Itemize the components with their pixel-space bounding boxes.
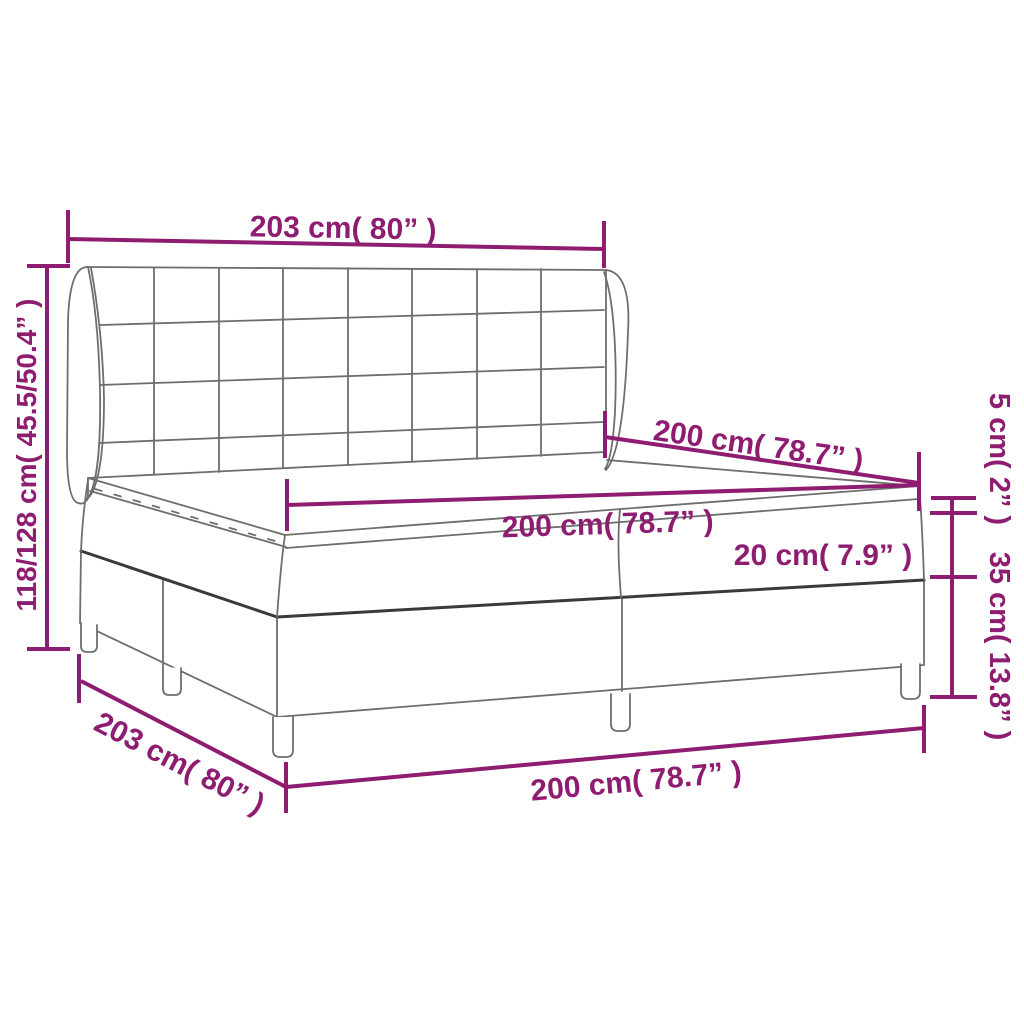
mattress-top-far-edge <box>607 460 919 486</box>
leg-front-middle <box>611 694 630 731</box>
headboard-left-wing-outer <box>67 267 88 504</box>
label-mattress-width: 200 cm( 78.7” ) <box>501 505 714 545</box>
mattress-left-end-edge <box>81 480 88 551</box>
leg-front-left <box>81 623 97 652</box>
headboard-bottom-edge <box>88 452 606 478</box>
bed-dimension-diagram: 203 cm( 80” ) 118/128 cm( 45.5/50.4” ) 2… <box>0 0 1024 1024</box>
dim-right-heights <box>930 498 977 697</box>
headboard-top-edge <box>88 267 606 270</box>
mattress-front-corner-edge <box>277 535 285 617</box>
headboard-left-wing-inner <box>87 267 100 500</box>
base-left-edge <box>80 551 81 623</box>
tuft-grid-h2 <box>100 367 604 385</box>
label-base-height: 35 cm( 13.8” ) <box>983 552 1015 741</box>
base-box-spring <box>80 551 924 717</box>
mattress-stitch-dashes <box>95 489 282 543</box>
leg-front-corner <box>273 717 293 757</box>
label-mattress-height: 20 cm( 7.9” ) <box>734 539 912 572</box>
tuft-grid-h3 <box>99 422 604 443</box>
label-topper-height: 5 cm( 2” ) <box>983 393 1015 525</box>
label-bed-length-upper: 200 cm( 78.7” ) <box>651 414 865 477</box>
bed-dimension-diagram-page: 203 cm( 80” ) 118/128 cm( 45.5/50.4” ) 2… <box>0 0 1024 1024</box>
headboard <box>67 267 628 504</box>
label-total-height: 118/128 cm( 45.5/50.4” ) <box>11 299 42 612</box>
mattress-top-left-edge <box>88 478 285 535</box>
leg-front-right <box>901 664 920 699</box>
tuft-grid-h1 <box>100 310 604 325</box>
leg-left-middle <box>163 667 181 695</box>
bed-drawing <box>67 267 924 757</box>
legs <box>81 623 920 757</box>
mattress-topper-seam-left <box>90 491 286 547</box>
base-front-bottom-edge <box>277 665 924 717</box>
dimension-labels: 203 cm( 80” ) 118/128 cm( 45.5/50.4” ) 2… <box>11 210 1015 821</box>
label-headboard-width: 203 cm( 80” ) <box>250 210 437 246</box>
